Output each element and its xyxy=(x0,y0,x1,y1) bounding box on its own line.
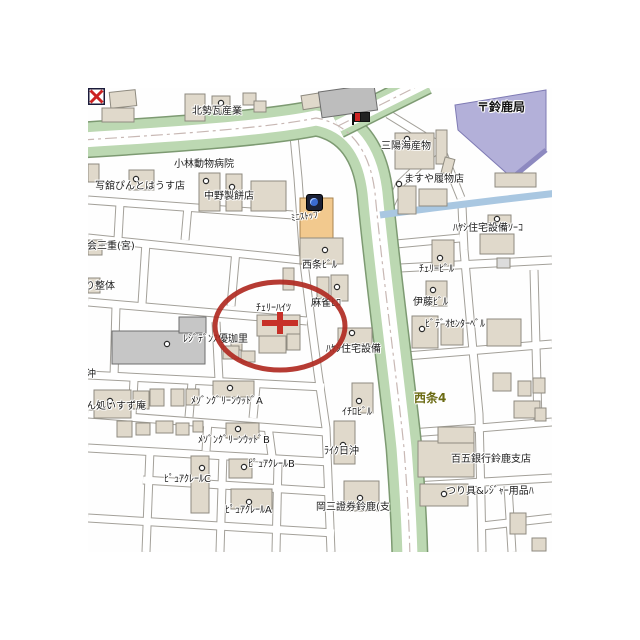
map-canvas[interactable]: 北勢瓦産業小林動物病院写舘ぴんとはうす店中野製餅店ﾐﾆｽﾄｯﾌﾟ三陽海産物ますや… xyxy=(88,88,552,552)
convenience-store-icon xyxy=(306,194,323,211)
bank-icon xyxy=(88,88,105,105)
flag-icon xyxy=(352,112,369,125)
page: 北勢瓦産業小林動物病院写舘ぴんとはうす店中野製餅店ﾐﾆｽﾄｯﾌﾟ三陽海産物ますや… xyxy=(0,0,640,640)
map-graphics xyxy=(88,88,552,552)
